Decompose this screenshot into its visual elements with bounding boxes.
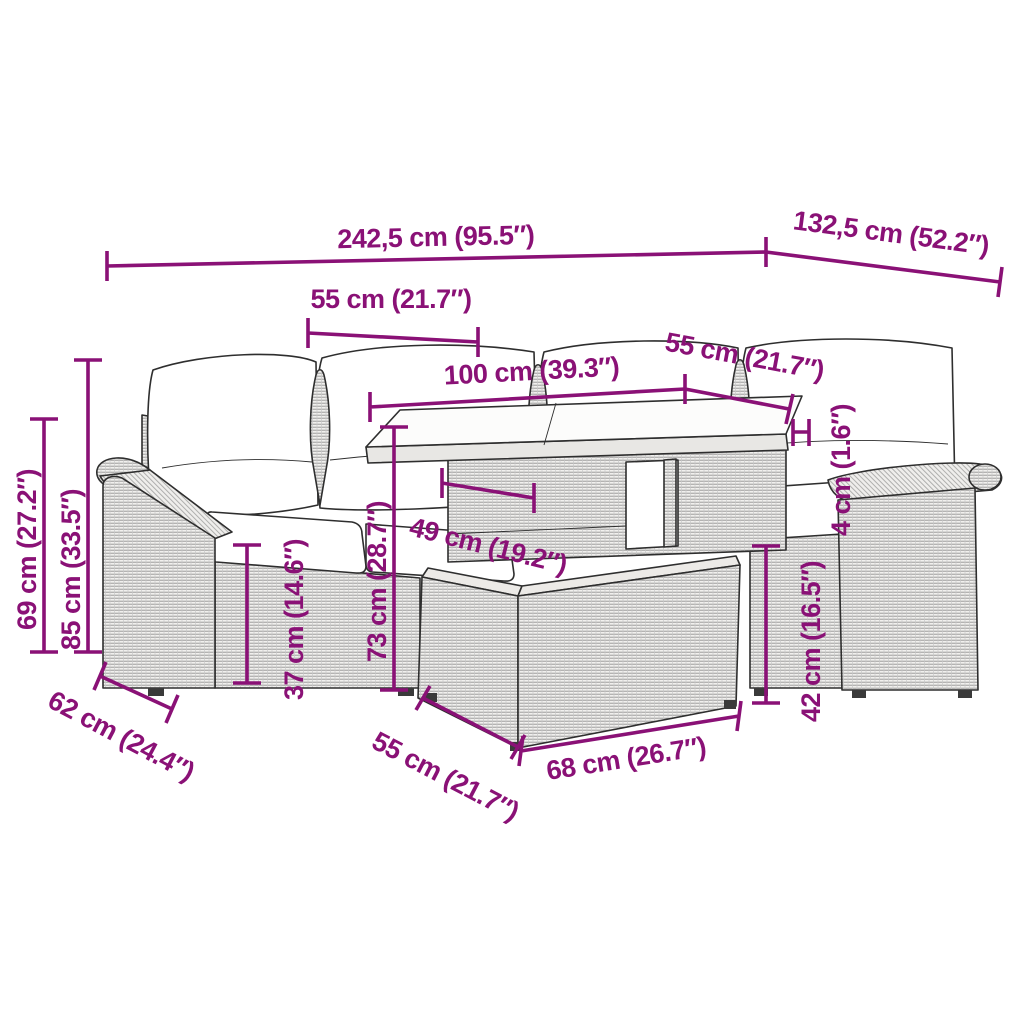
dim-ottoman-height-label: 42 cm (16.5″) xyxy=(796,561,826,722)
dim-side-depth: 132,5 cm (52.2″) xyxy=(766,205,1002,297)
dim-ottoman-depth-label: 55 cm (21.7″) xyxy=(367,726,524,827)
foot-1 xyxy=(148,688,164,696)
foot-4 xyxy=(852,690,866,698)
dim-tabletop-thickness-label: 4 cm (1.6″) xyxy=(826,404,856,536)
armrest-right-panel xyxy=(838,488,978,690)
ottoman-foot-3 xyxy=(724,700,736,709)
armrest-right-scroll xyxy=(969,464,1001,490)
table-pedestal-divider xyxy=(664,459,676,547)
dim-armrest-height: 69 cm (27.2″) xyxy=(12,419,58,652)
dim-seat-width-left-label: 55 cm (21.7″) xyxy=(310,284,471,314)
dim-backrest-height: 85 cm (33.5″) xyxy=(56,360,102,652)
dim-side-depth-label: 132,5 cm (52.2″) xyxy=(792,205,991,260)
dim-total-width: 242,5 cm (95.5″) xyxy=(107,220,766,281)
foot-5 xyxy=(958,690,972,698)
dim-backrest-height-label: 85 cm (33.5″) xyxy=(56,489,86,650)
dim-ottoman-width-label: 68 cm (26.7″) xyxy=(544,731,708,786)
dimension-diagram-svg: 242,5 cm (95.5″) 132,5 cm (52.2″) 55 cm … xyxy=(0,0,1024,1024)
dim-table-height-label: 73 cm (28.7″) xyxy=(362,501,392,662)
dim-armrest-height-label: 69 cm (27.2″) xyxy=(12,469,42,630)
dim-total-width-label: 242,5 cm (95.5″) xyxy=(337,220,535,254)
dim-seat-height-label: 37 cm (14.6″) xyxy=(279,539,309,700)
product-dimension-image: 242,5 cm (95.5″) 132,5 cm (52.2″) 55 cm … xyxy=(0,0,1024,1024)
